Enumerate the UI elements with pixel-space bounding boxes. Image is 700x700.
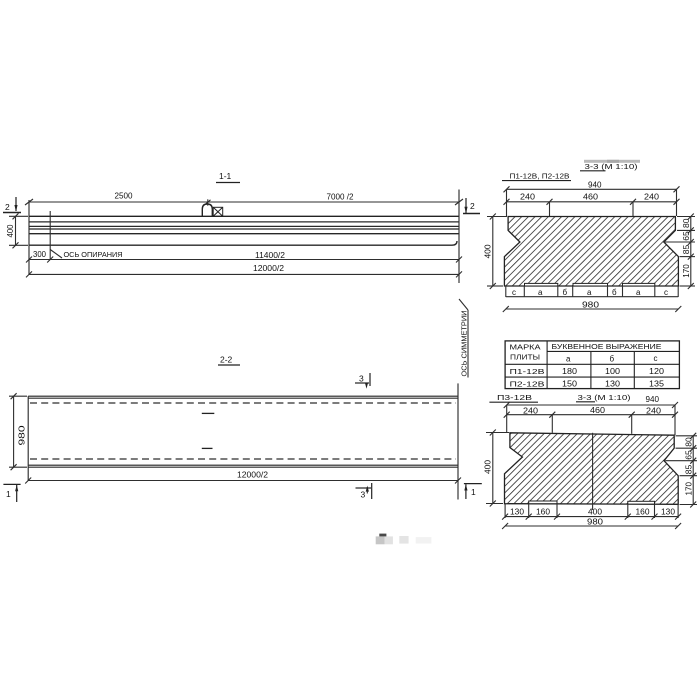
svg-text:12000/2: 12000/2: [237, 471, 269, 480]
svg-text:180: 180: [562, 367, 578, 376]
svg-text:400: 400: [588, 508, 603, 517]
svg-text:240: 240: [520, 193, 536, 202]
svg-text:с: с: [512, 288, 516, 297]
svg-text:400: 400: [484, 244, 493, 259]
svg-text:а: а: [587, 288, 592, 297]
svg-text:400: 400: [6, 224, 15, 238]
svg-text:3-3 (М 1:10): 3-3 (М 1:10): [585, 162, 639, 171]
svg-text:ОСЬ ОПИРАНИЯ: ОСЬ ОПИРАНИЯ: [64, 250, 123, 259]
svg-text:ОСЬ СИММЕТРИИ: ОСЬ СИММЕТРИИ: [460, 311, 469, 377]
svg-text:100: 100: [605, 367, 621, 376]
svg-text:2-2: 2-2: [220, 355, 233, 365]
svg-text:а: а: [636, 288, 641, 297]
svg-text:1: 1: [6, 489, 11, 499]
svg-text:300: 300: [33, 250, 47, 259]
svg-text:11400/2: 11400/2: [255, 251, 286, 260]
svg-text:980: 980: [582, 301, 600, 310]
svg-text:130: 130: [605, 380, 621, 389]
svg-text:1: 1: [471, 487, 476, 497]
svg-text:б: б: [563, 288, 568, 297]
svg-text:85: 85: [685, 464, 694, 474]
svg-text:2: 2: [470, 201, 475, 211]
svg-text:12000/2: 12000/2: [253, 264, 285, 273]
svg-text:П1-12В: П1-12В: [510, 367, 545, 376]
svg-text:460: 460: [583, 193, 599, 202]
svg-text:1-1: 1-1: [219, 171, 232, 181]
svg-text:с: с: [654, 354, 658, 363]
svg-text:120: 120: [649, 367, 665, 376]
svg-text:980: 980: [18, 425, 27, 446]
svg-text:65: 65: [682, 231, 691, 241]
svg-text:130: 130: [661, 508, 676, 517]
svg-text:85: 85: [682, 244, 691, 254]
svg-text:б: б: [610, 355, 615, 364]
svg-text:а: а: [538, 288, 543, 297]
svg-text:2500: 2500: [115, 192, 134, 201]
svg-text:150: 150: [562, 380, 578, 389]
svg-text:240: 240: [644, 193, 660, 202]
svg-text:160: 160: [636, 508, 651, 517]
svg-text:3: 3: [361, 490, 366, 500]
svg-text:65: 65: [685, 450, 694, 460]
svg-text:П1-12В, П2-12В: П1-12В, П2-12В: [510, 172, 570, 181]
svg-text:б: б: [612, 288, 617, 297]
svg-text:80: 80: [682, 218, 691, 228]
svg-text:80: 80: [685, 437, 694, 447]
svg-text:ПЛИТЫ: ПЛИТЫ: [510, 353, 540, 362]
svg-text:П2-12В: П2-12В: [510, 380, 545, 389]
svg-text:460: 460: [590, 406, 606, 415]
svg-text:135: 135: [649, 380, 665, 389]
svg-text:980: 980: [587, 518, 604, 527]
svg-text:170: 170: [685, 481, 694, 495]
svg-text:240: 240: [523, 407, 539, 416]
svg-text:940: 940: [646, 395, 660, 404]
svg-text:170: 170: [682, 264, 691, 278]
svg-text:П3-12В: П3-12В: [497, 393, 532, 402]
svg-text:400: 400: [484, 459, 493, 474]
svg-text:2: 2: [5, 202, 10, 212]
svg-text:с: с: [664, 288, 668, 297]
svg-text:7000 /2: 7000 /2: [327, 193, 355, 202]
svg-text:3: 3: [359, 374, 364, 384]
svg-text:160: 160: [536, 508, 551, 517]
svg-text:МАРКА: МАРКА: [510, 343, 541, 352]
svg-text:а: а: [566, 355, 571, 364]
svg-text:3-3 (М 1:10): 3-3 (М 1:10): [578, 393, 632, 402]
svg-text:БУКВЕННОЕ ВЫРАЖЕНИЕ: БУКВЕННОЕ ВЫРАЖЕНИЕ: [552, 342, 662, 351]
svg-text:130: 130: [510, 508, 525, 517]
svg-text:240: 240: [646, 407, 662, 416]
svg-text:940: 940: [588, 181, 602, 190]
